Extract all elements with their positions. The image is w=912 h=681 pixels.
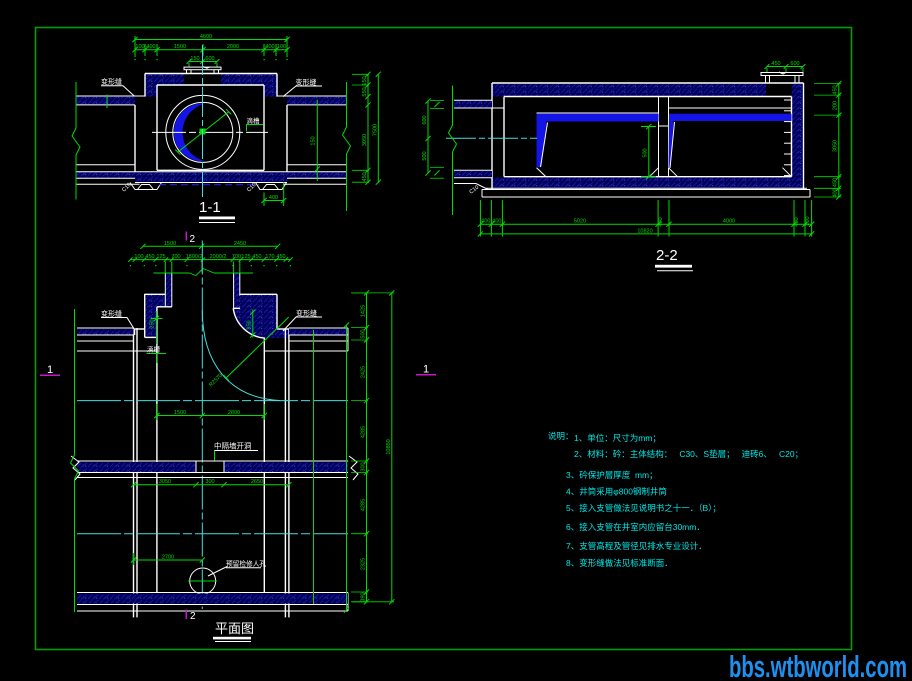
svg-text:600: 600 xyxy=(205,56,214,62)
svg-text:4285: 4285 xyxy=(361,499,367,511)
svg-text:400: 400 xyxy=(833,188,839,197)
svg-text:2425: 2425 xyxy=(361,366,367,378)
svg-text:600: 600 xyxy=(790,61,799,67)
svg-text:150: 150 xyxy=(311,136,317,145)
svg-text:10820: 10820 xyxy=(637,229,652,235)
svg-text:1800/2: 1800/2 xyxy=(186,254,203,260)
svg-text:1425: 1425 xyxy=(361,305,367,317)
svg-text:1、单位：尺寸为mm；: 1、单位：尺寸为mm； xyxy=(574,433,661,443)
svg-text:170: 170 xyxy=(265,254,274,260)
svg-text:4285: 4285 xyxy=(361,426,367,438)
svg-text:3、砛保护層厚度 mm；: 3、砛保护層厚度 mm； xyxy=(566,470,658,480)
svg-text:150: 150 xyxy=(190,56,199,62)
svg-text:500: 500 xyxy=(361,329,367,338)
svg-text:4000: 4000 xyxy=(723,219,735,225)
svg-text:1500: 1500 xyxy=(174,44,186,50)
svg-text:6、接入支管在井室内应留台30mm．: 6、接入支管在井室内应留台30mm． xyxy=(566,522,705,532)
svg-text:7500: 7500 xyxy=(373,124,379,136)
svg-text:450: 450 xyxy=(833,85,839,94)
svg-text:100: 100 xyxy=(134,254,143,260)
svg-text:450: 450 xyxy=(145,254,154,260)
svg-text:400: 400 xyxy=(492,219,501,225)
svg-text:2650: 2650 xyxy=(251,479,263,485)
svg-text:1500: 1500 xyxy=(164,241,176,247)
svg-text:400: 400 xyxy=(269,195,278,201)
svg-text:10850: 10850 xyxy=(386,439,392,454)
svg-text:变形缝: 变形缝 xyxy=(101,309,122,318)
svg-text:100: 100 xyxy=(277,44,286,50)
svg-text:滴槽: 滴槽 xyxy=(147,345,161,354)
svg-text:500: 500 xyxy=(643,148,649,157)
svg-text:550: 550 xyxy=(362,87,368,96)
svg-text:变形缝: 变形缝 xyxy=(101,77,122,86)
svg-text:5020: 5020 xyxy=(574,219,586,225)
svg-text:600: 600 xyxy=(422,115,428,124)
svg-text:滴槽: 滴槽 xyxy=(247,116,261,125)
svg-text:700: 700 xyxy=(232,254,241,260)
svg-text:bbs.wtbworld.com: bbs.wtbworld.com xyxy=(729,649,907,681)
svg-text:200: 200 xyxy=(833,101,839,110)
svg-text:2-2: 2-2 xyxy=(656,247,678,264)
svg-text:400: 400 xyxy=(146,44,155,50)
svg-text:500: 500 xyxy=(422,151,428,160)
svg-text:2700: 2700 xyxy=(162,554,174,560)
svg-text:100: 100 xyxy=(135,44,144,50)
svg-text:3050: 3050 xyxy=(159,479,171,485)
svg-text:2325: 2325 xyxy=(361,558,367,570)
svg-text:300: 300 xyxy=(361,462,367,471)
svg-text:2: 2 xyxy=(190,234,196,245)
svg-text:850: 850 xyxy=(246,320,252,329)
svg-text:1-1: 1-1 xyxy=(199,199,221,216)
svg-text:400: 400 xyxy=(481,219,490,225)
svg-text:250: 250 xyxy=(150,319,156,328)
svg-text:变形缝: 变形缝 xyxy=(296,309,317,318)
svg-text:3050: 3050 xyxy=(833,140,839,152)
svg-text:700: 700 xyxy=(171,254,180,260)
svg-text:2000: 2000 xyxy=(227,44,239,50)
svg-text:200: 200 xyxy=(805,216,811,225)
svg-text:预留检修人孔: 预留检修人孔 xyxy=(226,559,266,568)
svg-text:4、井筒采用φ800钢制井筒: 4、井筒采用φ800钢制井筒 xyxy=(566,487,667,497)
svg-text:450: 450 xyxy=(252,254,261,260)
svg-text:1: 1 xyxy=(47,364,53,376)
svg-text:说明：: 说明： xyxy=(548,431,574,441)
svg-text:450: 450 xyxy=(833,178,839,187)
svg-text:125: 125 xyxy=(156,254,165,260)
svg-text:8、变形缝做法见标准断面．: 8、变形缝做法见标准断面． xyxy=(566,558,673,568)
svg-text:390: 390 xyxy=(361,592,367,601)
svg-text:中隔墙开洞: 中隔墙开洞 xyxy=(214,441,252,451)
svg-text:450: 450 xyxy=(771,61,780,67)
svg-text:400: 400 xyxy=(658,217,664,226)
svg-text:450: 450 xyxy=(362,172,368,181)
svg-text:2: 2 xyxy=(190,611,196,622)
svg-text:1: 1 xyxy=(423,364,429,376)
svg-text:7、支管高程及管径见排水专业设计．: 7、支管高程及管径见排水专业设计． xyxy=(566,541,707,551)
svg-text:400: 400 xyxy=(794,217,800,226)
svg-text:2、材料：砛：主体结构： C30、S垫層； 迪砖6、: 2、材料：砛：主体结构： C30、S垫層； 迪砖6、 C20； xyxy=(574,449,803,459)
svg-text:150: 150 xyxy=(362,76,368,85)
svg-text:变形缝: 变形缝 xyxy=(296,78,317,87)
svg-text:1500: 1500 xyxy=(174,410,186,416)
svg-text:4600: 4600 xyxy=(200,34,212,40)
svg-text:平面图: 平面图 xyxy=(215,621,254,636)
svg-text:2800: 2800 xyxy=(228,410,240,416)
svg-text:300: 300 xyxy=(205,479,214,485)
svg-text:2000/2: 2000/2 xyxy=(210,254,227,260)
svg-text:450: 450 xyxy=(276,254,285,260)
svg-text:125: 125 xyxy=(241,254,250,260)
svg-text:400: 400 xyxy=(265,44,274,50)
svg-text:2450: 2450 xyxy=(234,241,246,247)
svg-text:3050: 3050 xyxy=(362,134,368,146)
svg-text:5、接入支管做法见说明书之十一．（B）；: 5、接入支管做法见说明书之十一．（B）； xyxy=(566,503,721,513)
